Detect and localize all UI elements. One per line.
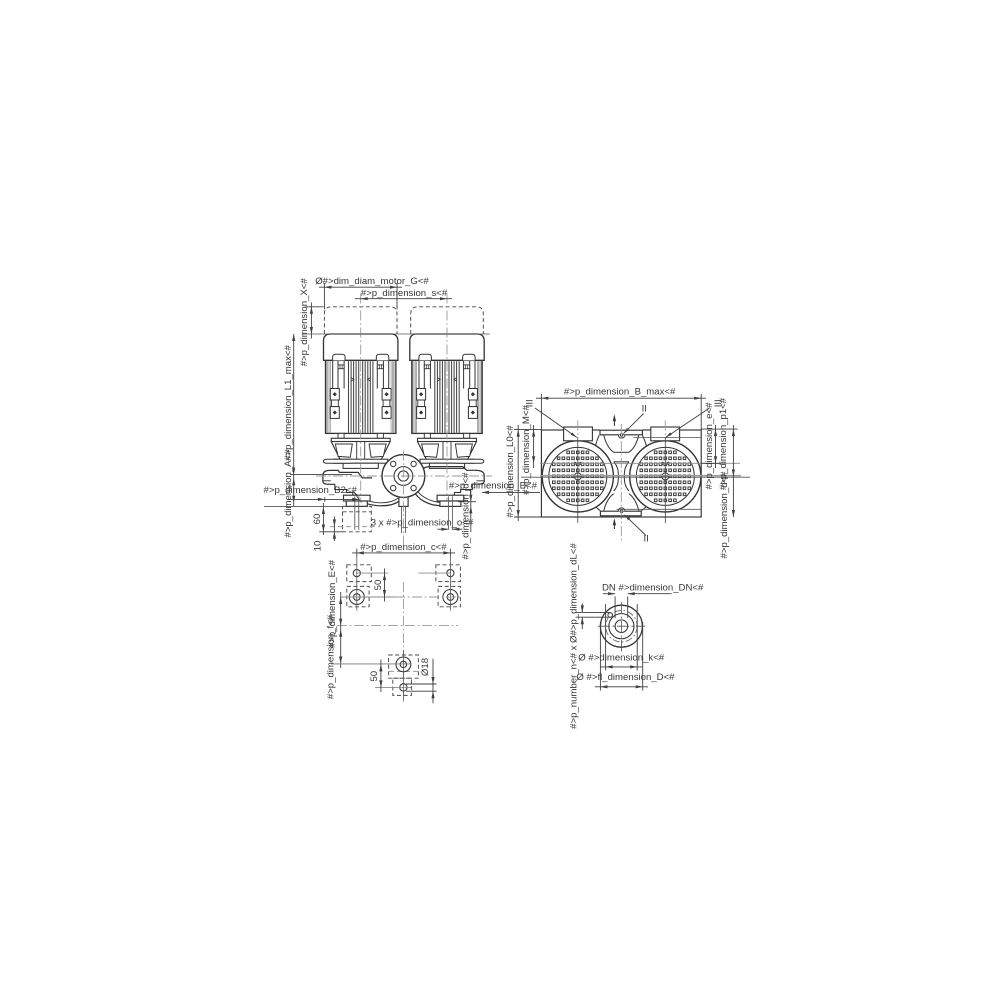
svg-text:Ø #>dimension_k<#: Ø #>dimension_k<#	[578, 653, 665, 664]
svg-text:#>p_dimension_s<#: #>p_dimension_s<#	[361, 288, 448, 299]
svg-text:#>p_dimension_c<#: #>p_dimension_c<#	[360, 542, 447, 553]
svg-text:Ø18: Ø18	[420, 658, 431, 676]
svg-text:#>p_dimension_B_max<#: #>p_dimension_B_max<#	[564, 387, 676, 398]
svg-text:Ø#>dim_diam_motor_G<#: Ø#>dim_diam_motor_G<#	[315, 276, 429, 287]
svg-text:#>p_dimension_B2<#: #>p_dimension_B2<#	[264, 485, 358, 496]
svg-text:II: II	[642, 404, 647, 415]
svg-text:50: 50	[369, 671, 380, 682]
svg-text:#>p_dimension_L1_max<#: #>p_dimension_L1_max<#	[283, 344, 294, 460]
svg-text:DN #>dimension_DN<#: DN #>dimension_DN<#	[602, 583, 704, 594]
svg-text:#>p_number_n<# x Ø#>p_dimensio: #>p_number_n<# x Ø#>p_dimension_dL<#	[569, 543, 580, 729]
svg-text:#>p_dimension_L0<#: #>p_dimension_L0<#	[505, 425, 516, 518]
svg-text:#>p_dimension_d<#: #>p_dimension_d<#	[719, 471, 730, 559]
svg-text:#>p_dimension_M<#: #>p_dimension_M<#	[521, 405, 532, 495]
svg-text:#>p_dimension_f<#: #>p_dimension_f<#	[325, 614, 336, 699]
svg-text:10: 10	[313, 541, 324, 552]
svg-text:3 x #>p_dimension_o<#: 3 x #>p_dimension_o<#	[371, 518, 474, 529]
svg-text:Ø #>fl_dimension_D<#: Ø #>fl_dimension_D<#	[576, 672, 675, 683]
svg-text:#>p_dimension_d<#: #>p_dimension_d<#	[460, 472, 471, 560]
svg-text:60: 60	[312, 514, 323, 525]
svg-text:50: 50	[373, 580, 384, 591]
svg-text:#>p_dimension_X<#: #>p_dimension_X<#	[299, 278, 310, 367]
svg-text:#>p_dimension_e<#: #>p_dimension_e<#	[704, 402, 715, 490]
